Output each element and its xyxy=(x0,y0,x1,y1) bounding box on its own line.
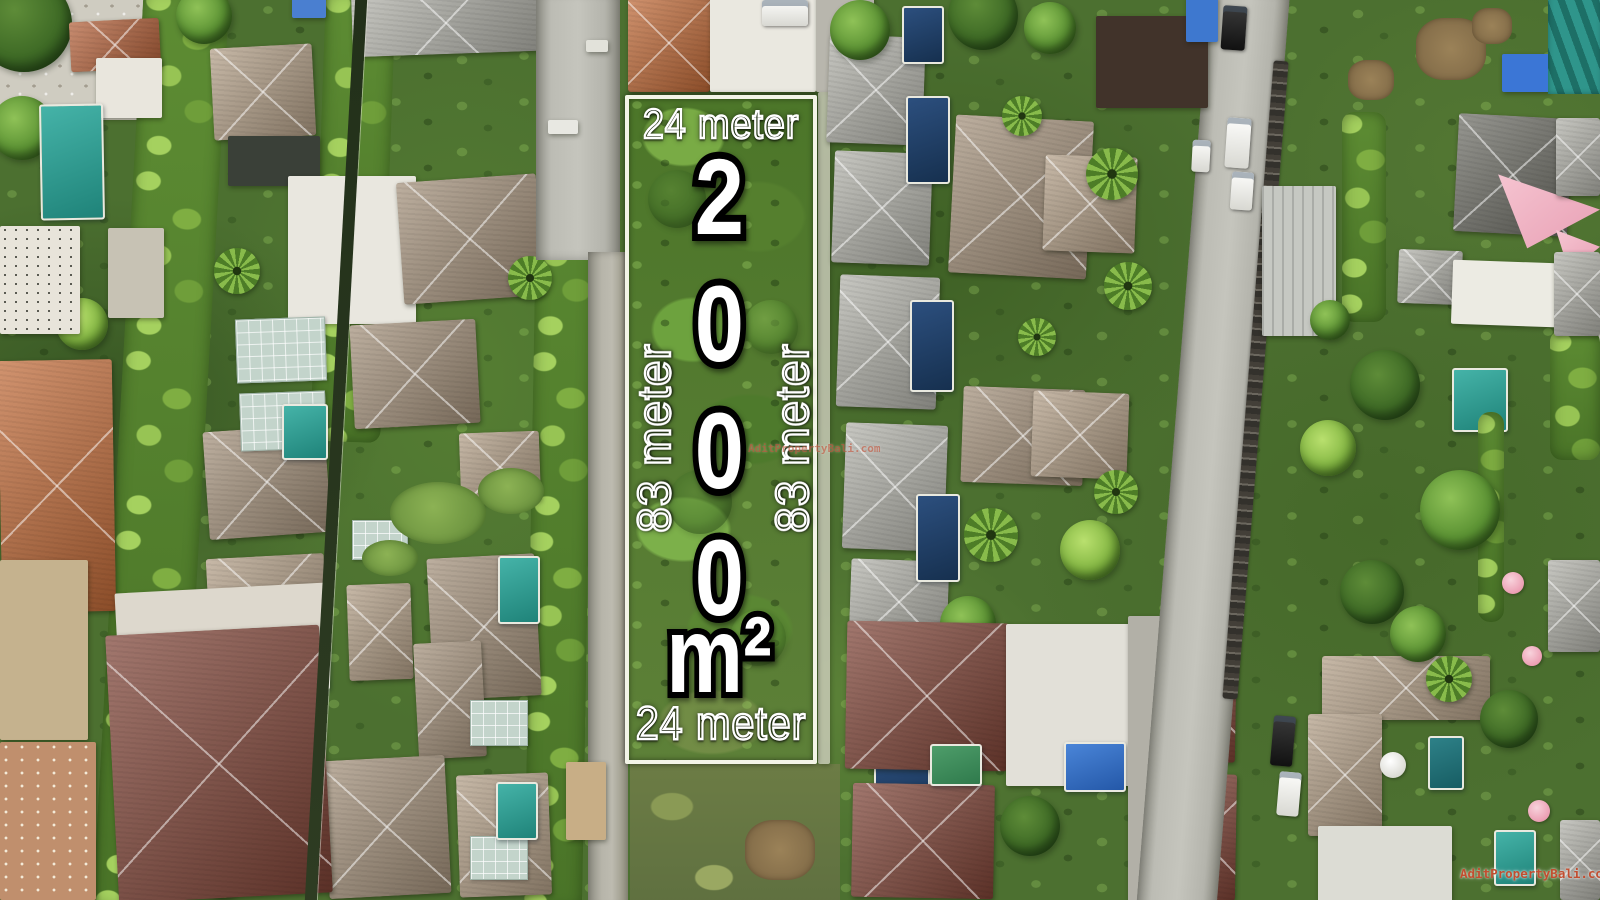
garden-lawn xyxy=(362,540,418,576)
tree xyxy=(1350,350,1420,420)
left-length-label: 83 meter xyxy=(627,343,681,533)
tree xyxy=(1480,690,1538,748)
villa-roof xyxy=(628,0,710,92)
watermark-center: AditPropertyBali.com xyxy=(748,442,880,455)
garden-lawn xyxy=(390,482,486,544)
dirt-patch xyxy=(1472,8,1512,44)
building-roof xyxy=(0,226,80,334)
swimming-pool xyxy=(498,556,540,624)
glass-roof xyxy=(470,700,528,746)
swimming-pool xyxy=(39,103,105,220)
road-marking xyxy=(548,120,578,134)
road-marking xyxy=(586,40,608,52)
palm-tree xyxy=(1002,96,1042,136)
palm-tree xyxy=(508,256,552,300)
pavilion-roof xyxy=(1308,714,1382,836)
parked-car xyxy=(1230,171,1255,210)
building-roof xyxy=(96,58,162,118)
swimming-pool xyxy=(496,782,538,840)
tarp xyxy=(1186,0,1218,42)
palm-tree xyxy=(214,248,260,294)
palm-tree xyxy=(1426,656,1472,702)
boundary-wall xyxy=(818,92,830,764)
villa-roof xyxy=(105,625,333,900)
dirt-patch xyxy=(745,820,815,880)
villa-roof xyxy=(349,319,480,429)
tree xyxy=(1310,300,1350,340)
tree xyxy=(830,0,890,60)
villa-roof xyxy=(845,621,1010,772)
parked-van xyxy=(1276,771,1302,817)
swimming-pool xyxy=(906,96,950,184)
tree xyxy=(948,0,1018,50)
tree xyxy=(1340,560,1404,624)
watermark-bottom-right: AditPropertyBali.com xyxy=(1460,866,1600,881)
right-length-label: 83 meter xyxy=(765,343,819,533)
area-value: 2000 xyxy=(675,136,764,644)
tarp xyxy=(1502,54,1550,92)
swimming-pool xyxy=(902,6,944,64)
swimming-pool xyxy=(930,744,982,786)
garden-lawn xyxy=(478,468,544,514)
pink-umbrella xyxy=(1528,800,1550,822)
swimming-pool xyxy=(916,494,960,582)
tree xyxy=(1390,606,1446,662)
villa-roof xyxy=(1554,252,1600,336)
tree xyxy=(1000,796,1060,856)
parked-van xyxy=(762,0,808,26)
parked-car xyxy=(1220,5,1247,51)
swimming-pool xyxy=(282,404,328,460)
parked-car xyxy=(1270,715,1296,767)
villa-roof xyxy=(1560,820,1600,900)
palm-tree xyxy=(1104,262,1152,310)
tree xyxy=(1420,470,1500,550)
bottom-width-label: 24 meter xyxy=(636,696,807,750)
villa-roof xyxy=(1556,118,1600,196)
palm-tree xyxy=(964,508,1018,562)
villa-roof xyxy=(1548,560,1600,652)
villa-roof xyxy=(851,783,995,899)
villa-roof xyxy=(322,755,451,899)
pink-umbrella xyxy=(1502,572,1524,594)
villa-roof xyxy=(346,583,413,681)
white-umbrella xyxy=(1380,752,1406,778)
glass-roof xyxy=(470,836,528,880)
pink-umbrella xyxy=(1522,646,1542,666)
parked-van xyxy=(1224,117,1251,169)
shade-net-fence xyxy=(1548,0,1600,94)
building-roof xyxy=(566,762,606,840)
stone-patio xyxy=(108,228,164,318)
palm-tree xyxy=(1018,318,1056,356)
aerial-photo: 24 meter 2000 m² 24 meter 83 meter 83 me… xyxy=(0,0,1600,900)
palm-tree xyxy=(1086,148,1138,200)
swimming-pool xyxy=(1064,742,1126,792)
tree xyxy=(1300,420,1356,476)
hedge-row xyxy=(1342,112,1386,322)
parked-car xyxy=(1191,140,1211,173)
palm-tree xyxy=(1094,470,1138,514)
swimming-pool xyxy=(910,300,954,392)
building-roof xyxy=(351,0,541,57)
tarp xyxy=(292,0,326,18)
villa-roof xyxy=(1031,390,1130,479)
building-roof xyxy=(1318,826,1452,900)
hedge-row xyxy=(1550,330,1600,460)
villa-roof xyxy=(0,742,96,900)
tree xyxy=(1024,2,1076,54)
dirt-patch xyxy=(1348,60,1394,100)
swimming-pool xyxy=(1428,736,1464,790)
tree xyxy=(1060,520,1120,580)
building-roof xyxy=(0,560,88,740)
glass-roof xyxy=(235,316,327,383)
